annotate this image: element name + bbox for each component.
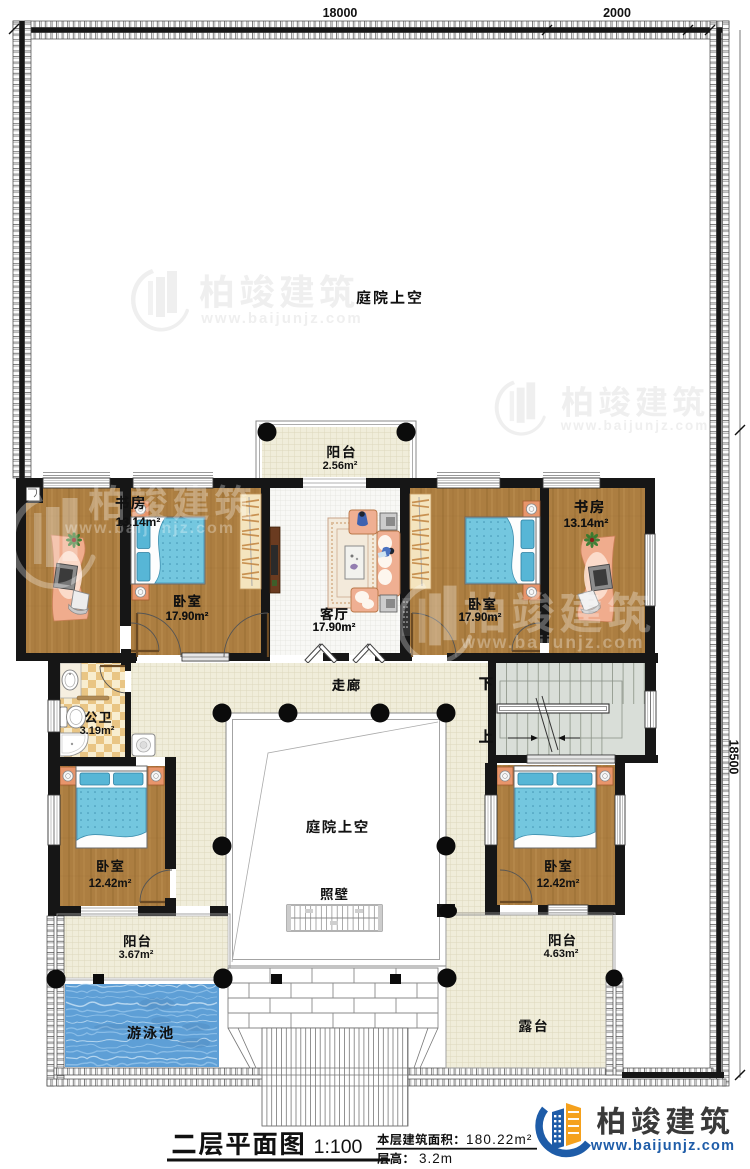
svg-text:17.90m²: 17.90m²	[313, 622, 356, 634]
svg-text:1:100: 1:100	[314, 1136, 363, 1158]
svg-text:4.63m²: 4.63m²	[544, 948, 579, 960]
svg-text:3.19m²: 3.19m²	[80, 725, 115, 737]
svg-text:3.2m: 3.2m	[419, 1151, 453, 1166]
svg-text:13.14m²: 13.14m²	[564, 516, 609, 530]
svg-text:12.42m²: 12.42m²	[89, 878, 132, 890]
svg-text:12.42m²: 12.42m²	[537, 878, 580, 890]
svg-text:2.56m²: 2.56m²	[323, 460, 358, 472]
svg-text:3.67m²: 3.67m²	[119, 949, 154, 961]
svg-text:180.22m²: 180.22m²	[466, 1132, 533, 1147]
svg-text:www.baijunjz.com: www.baijunjz.com	[200, 310, 362, 327]
svg-text:www.baijunjz.com: www.baijunjz.com	[590, 1138, 735, 1154]
svg-text:2000: 2000	[603, 6, 631, 20]
svg-text:17.90m²: 17.90m²	[459, 612, 502, 624]
svg-text:www.baijunjz.com: www.baijunjz.com	[460, 632, 644, 652]
svg-text:www.baijunjz.com: www.baijunjz.com	[560, 418, 710, 433]
svg-text:18500: 18500	[727, 740, 741, 775]
svg-text:13.14m²: 13.14m²	[116, 515, 161, 529]
svg-text:18000: 18000	[323, 6, 358, 20]
svg-text:17.90m²: 17.90m²	[166, 611, 209, 623]
